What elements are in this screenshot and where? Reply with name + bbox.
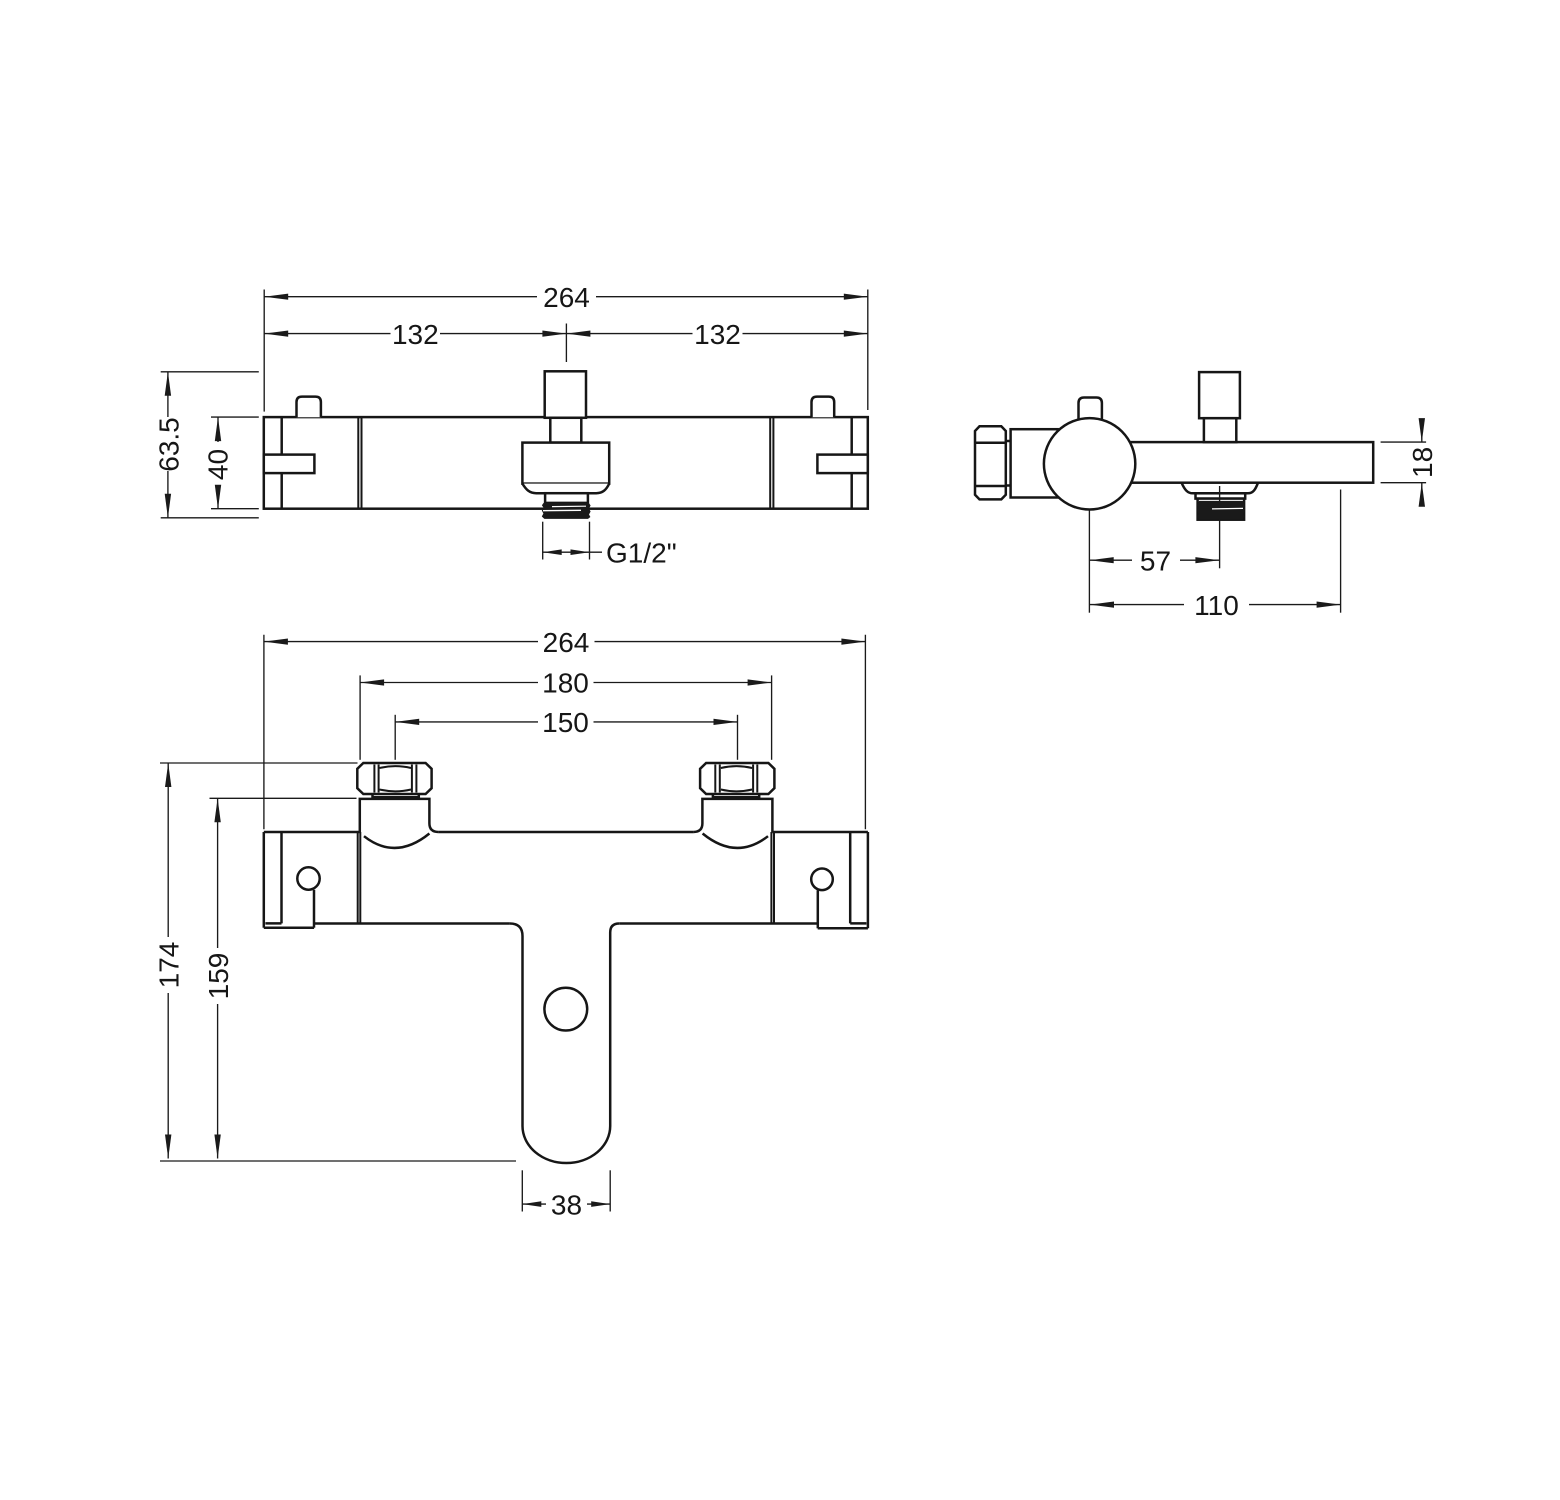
svg-text:110: 110 [1194,590,1239,621]
svg-text:174: 174 [153,942,184,989]
svg-text:180: 180 [542,668,589,699]
svg-text:57: 57 [1140,545,1171,576]
svg-text:132: 132 [694,319,741,350]
svg-text:38: 38 [551,1189,582,1220]
svg-text:264: 264 [543,282,590,313]
svg-text:63.5: 63.5 [153,417,184,472]
svg-text:132: 132 [392,319,439,350]
svg-text:G1/2": G1/2" [606,537,677,568]
svg-text:40: 40 [203,449,234,480]
svg-text:18: 18 [1407,447,1438,478]
svg-text:150: 150 [542,707,589,738]
svg-text:159: 159 [203,953,234,1000]
svg-text:264: 264 [543,627,590,658]
